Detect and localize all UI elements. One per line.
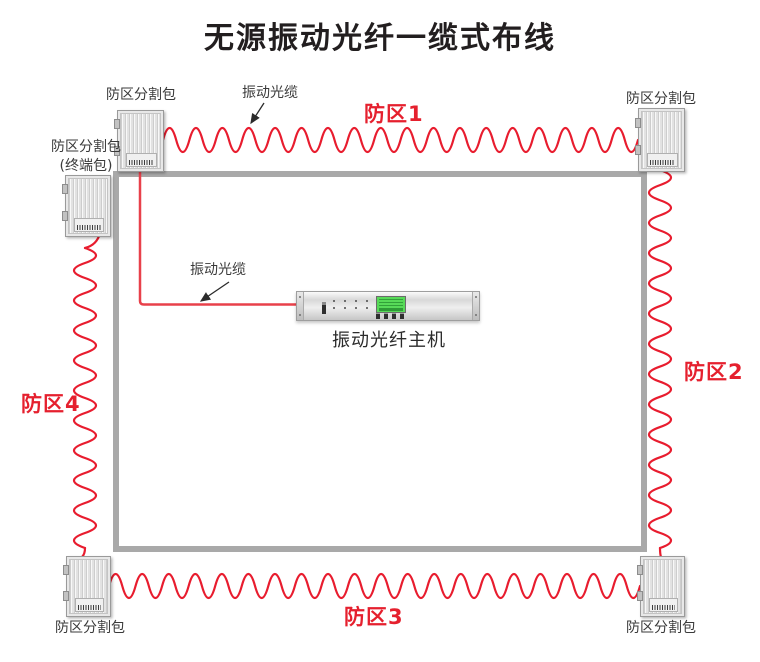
box-label-plate: [649, 598, 679, 612]
zone1-cable-wave: [163, 128, 638, 152]
rack-ear: [472, 292, 479, 320]
lcd-menu-bar: [379, 308, 403, 311]
box-hinge: [63, 565, 69, 575]
lcd-screen: [376, 296, 406, 313]
status-led: [355, 300, 357, 302]
lcd-text-lines: [379, 299, 403, 306]
box-hinge: [637, 565, 643, 575]
label-box-bottom-right: 防区分割包: [621, 619, 701, 638]
zone3-cable-wave: [109, 574, 640, 598]
panel-button: [376, 313, 380, 319]
zone2-cable-wave: [649, 170, 671, 548]
status-led: [344, 307, 346, 309]
label-box-top-right: 防区分割包: [621, 90, 701, 109]
barcode: [77, 225, 101, 230]
label-terminal-line1: 防区分割包: [45, 138, 127, 157]
fiber-host-unit: [296, 291, 480, 321]
panel-button: [400, 313, 404, 319]
barcode: [78, 605, 102, 610]
diagram-canvas: 无源振动光纤一缆式布线: [0, 0, 760, 662]
box-hinge: [63, 591, 69, 601]
label-zone4: 防区4: [21, 388, 81, 418]
status-led: [366, 307, 368, 309]
box-hinge: [114, 119, 120, 129]
cable-arrow-host: [201, 282, 229, 301]
box-label-plate: [126, 153, 157, 167]
barcode: [650, 160, 675, 165]
box-hinge: [635, 145, 641, 155]
screw: [475, 314, 477, 316]
label-box-top-left: 防区分割包: [101, 86, 181, 105]
box-label-plate: [647, 153, 678, 167]
label-zone1: 防区1: [364, 98, 424, 128]
power-switch: [322, 302, 326, 314]
perimeter-wall: [116, 174, 644, 549]
box-hinge: [637, 591, 643, 601]
screw: [299, 296, 301, 298]
host-feed-cable: [140, 170, 297, 305]
zone-splitter-box-top-right: [638, 108, 685, 172]
terminal-box: [65, 175, 111, 237]
status-led: [333, 300, 335, 302]
label-vibration-cable-top: 振动光缆: [230, 84, 310, 103]
rack-ear: [297, 292, 304, 320]
box-hinge: [62, 184, 68, 194]
status-led: [333, 307, 335, 309]
zone-splitter-box-bottom-right: [640, 556, 685, 617]
screw: [299, 314, 301, 316]
status-led: [366, 300, 368, 302]
barcode: [129, 160, 154, 165]
label-vibration-cable-host: 振动光缆: [178, 261, 258, 280]
status-led: [344, 300, 346, 302]
box-hinge: [635, 118, 641, 128]
label-terminal-line2: (终端包): [45, 157, 127, 176]
cable-arrow-top: [251, 103, 264, 123]
screw: [475, 296, 477, 298]
status-led: [355, 307, 357, 309]
box-label-plate: [75, 598, 105, 612]
box-label-plate: [74, 218, 104, 232]
label-fiber-host: 振动光纤主机: [294, 326, 484, 352]
box-hinge: [62, 211, 68, 221]
barcode: [652, 605, 676, 610]
label-terminal-box: 防区分割包 (终端包): [45, 138, 127, 176]
panel-button: [384, 313, 388, 319]
zone-splitter-box-bottom-left: [66, 556, 111, 617]
label-box-bottom-left: 防区分割包: [50, 619, 130, 638]
label-zone2: 防区2: [684, 356, 744, 386]
label-zone3: 防区3: [344, 601, 404, 631]
panel-button: [392, 313, 396, 319]
